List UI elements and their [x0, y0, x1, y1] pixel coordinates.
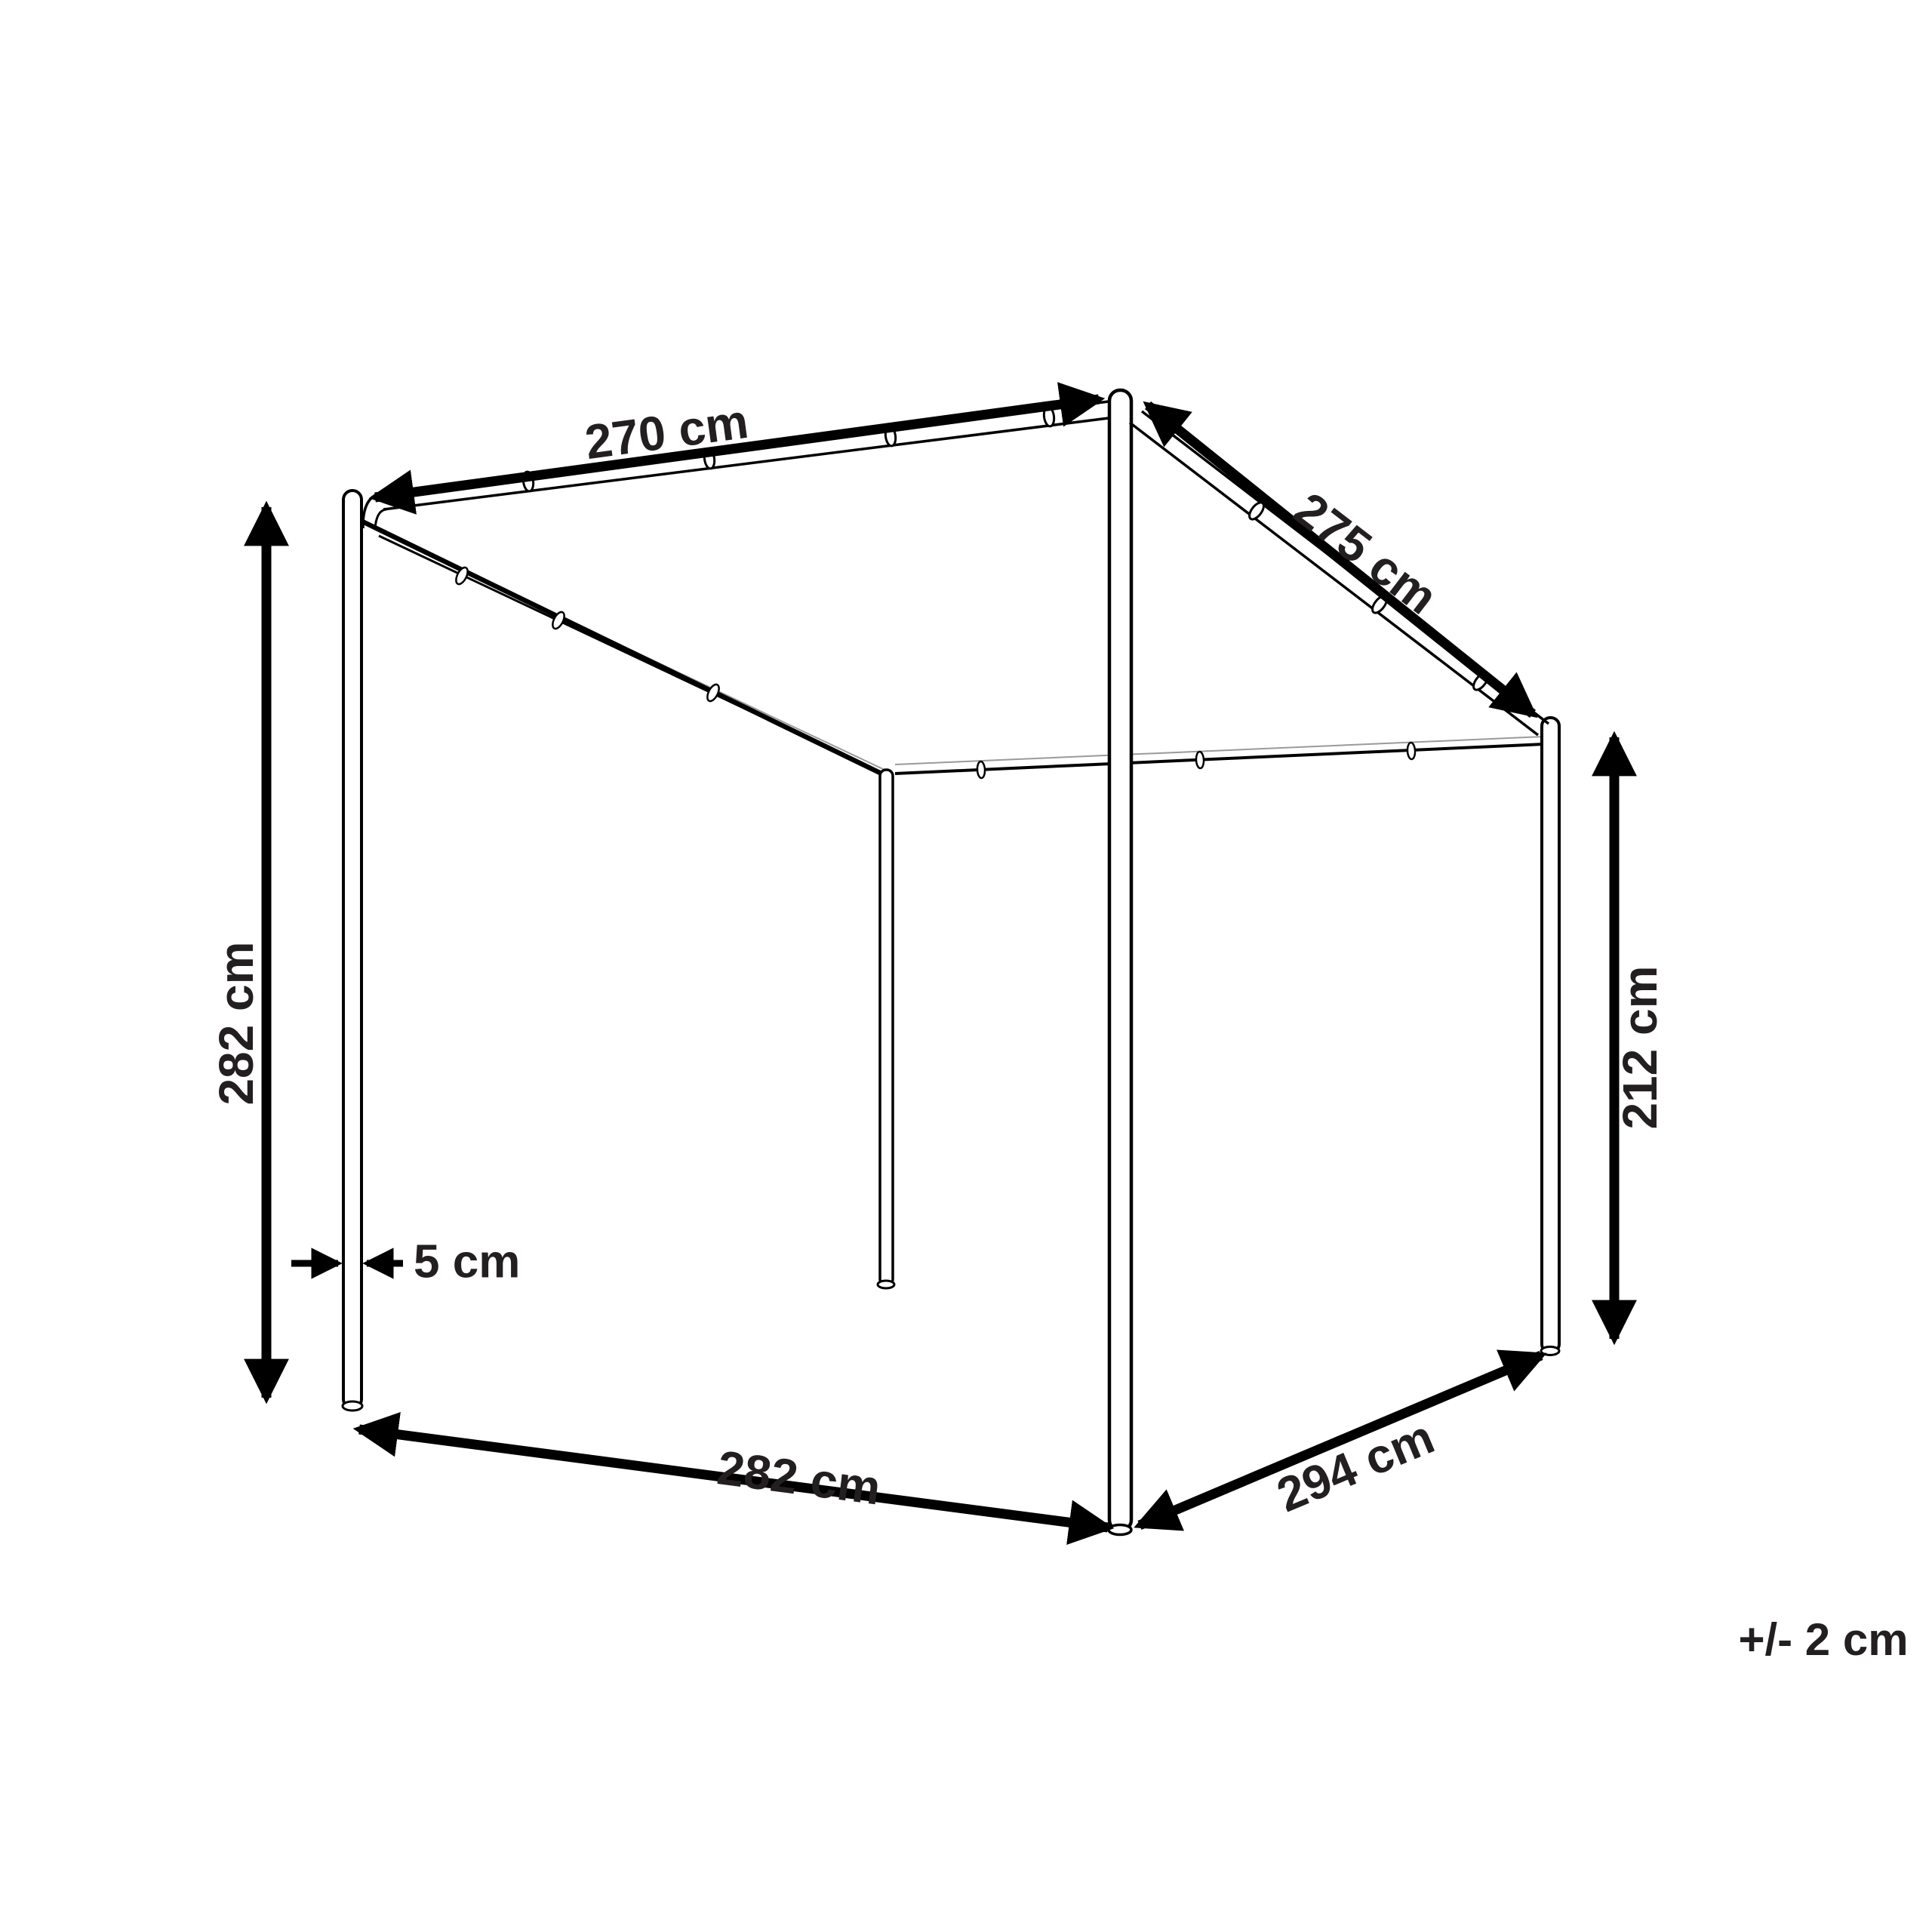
- label-bottom-front-282: 282 cm: [714, 1440, 884, 1515]
- rear-left-post-foot: [878, 1281, 894, 1288]
- diagram-canvas: 270 cm 275 cm 282 cm 212 cm 5 cm 282 cm …: [0, 0, 1932, 1932]
- label-left-height-282: 282 cm: [209, 941, 263, 1105]
- label-post-width-5: 5 cm: [414, 1235, 520, 1287]
- roof-back-beam-joints: [977, 743, 1415, 778]
- label-top-front-270: 270 cm: [582, 394, 752, 469]
- front-right-post-foot: [1109, 1525, 1131, 1535]
- rear-right-post: [1542, 718, 1559, 1352]
- rear-right-post-foot: [1541, 1347, 1559, 1355]
- front-left-post-foot: [343, 1401, 362, 1411]
- front-left-post: [343, 491, 361, 1408]
- label-bottom-side-294: 294 cm: [1269, 1409, 1441, 1522]
- roof-left-tube: [379, 536, 891, 777]
- top-front-beam-elbow-inner: [375, 509, 386, 528]
- dimension-labels: 270 cm 275 cm 282 cm 212 cm 5 cm 282 cm …: [209, 394, 1909, 1665]
- label-right-height-212: 212 cm: [1613, 965, 1667, 1129]
- roof-back-beam: [895, 744, 1544, 774]
- tolerance-note: +/- 2 cm: [1738, 1614, 1908, 1665]
- rear-left-post: [880, 770, 893, 1285]
- front-right-post: [1109, 390, 1131, 1531]
- canopy-dimension-diagram: 270 cm 275 cm 282 cm 212 cm 5 cm 282 cm …: [0, 0, 1932, 1932]
